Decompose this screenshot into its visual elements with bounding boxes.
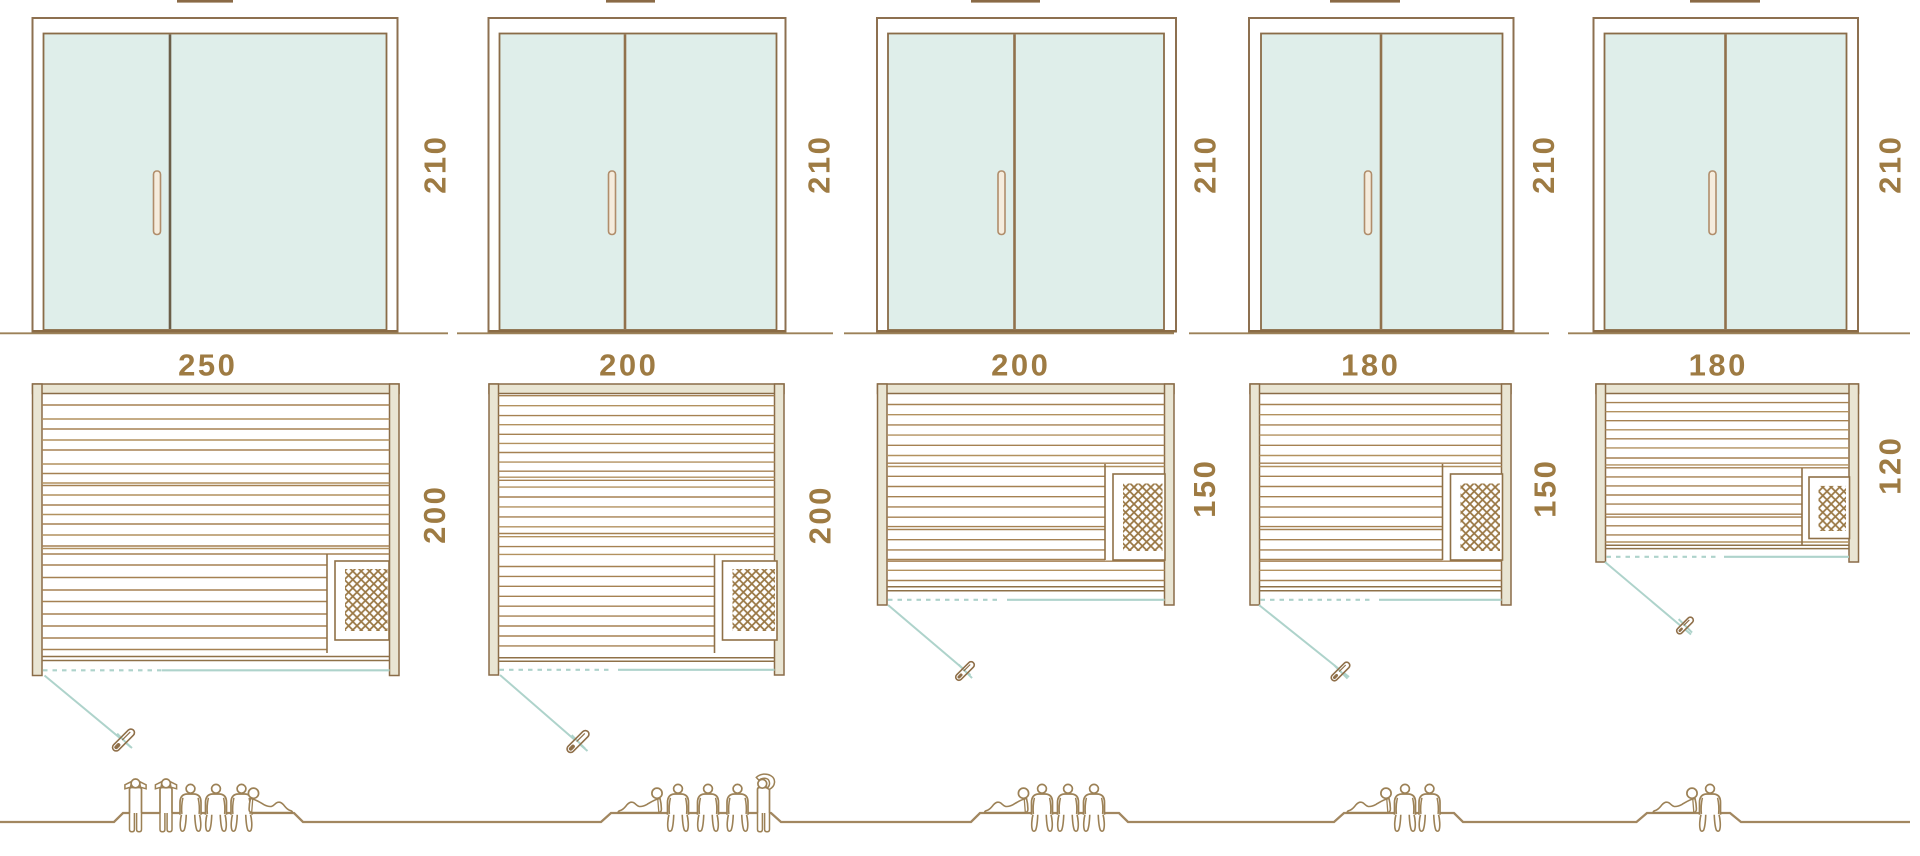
svg-text:180: 180	[1689, 348, 1748, 383]
svg-text:200: 200	[991, 348, 1050, 383]
svg-text:200: 200	[803, 485, 838, 544]
svg-text:200: 200	[599, 348, 658, 383]
svg-text:150: 150	[1528, 459, 1563, 518]
svg-text:150: 150	[1187, 459, 1222, 518]
svg-text:200: 200	[417, 485, 452, 544]
svg-text:210: 210	[802, 135, 837, 194]
svg-text:180: 180	[1341, 348, 1400, 383]
svg-text:210: 210	[1188, 135, 1223, 194]
svg-text:120: 120	[1873, 436, 1908, 495]
svg-text:210: 210	[1526, 135, 1561, 194]
svg-text:210: 210	[1873, 135, 1908, 194]
svg-text:250: 250	[178, 348, 237, 383]
svg-text:210: 210	[418, 135, 453, 194]
